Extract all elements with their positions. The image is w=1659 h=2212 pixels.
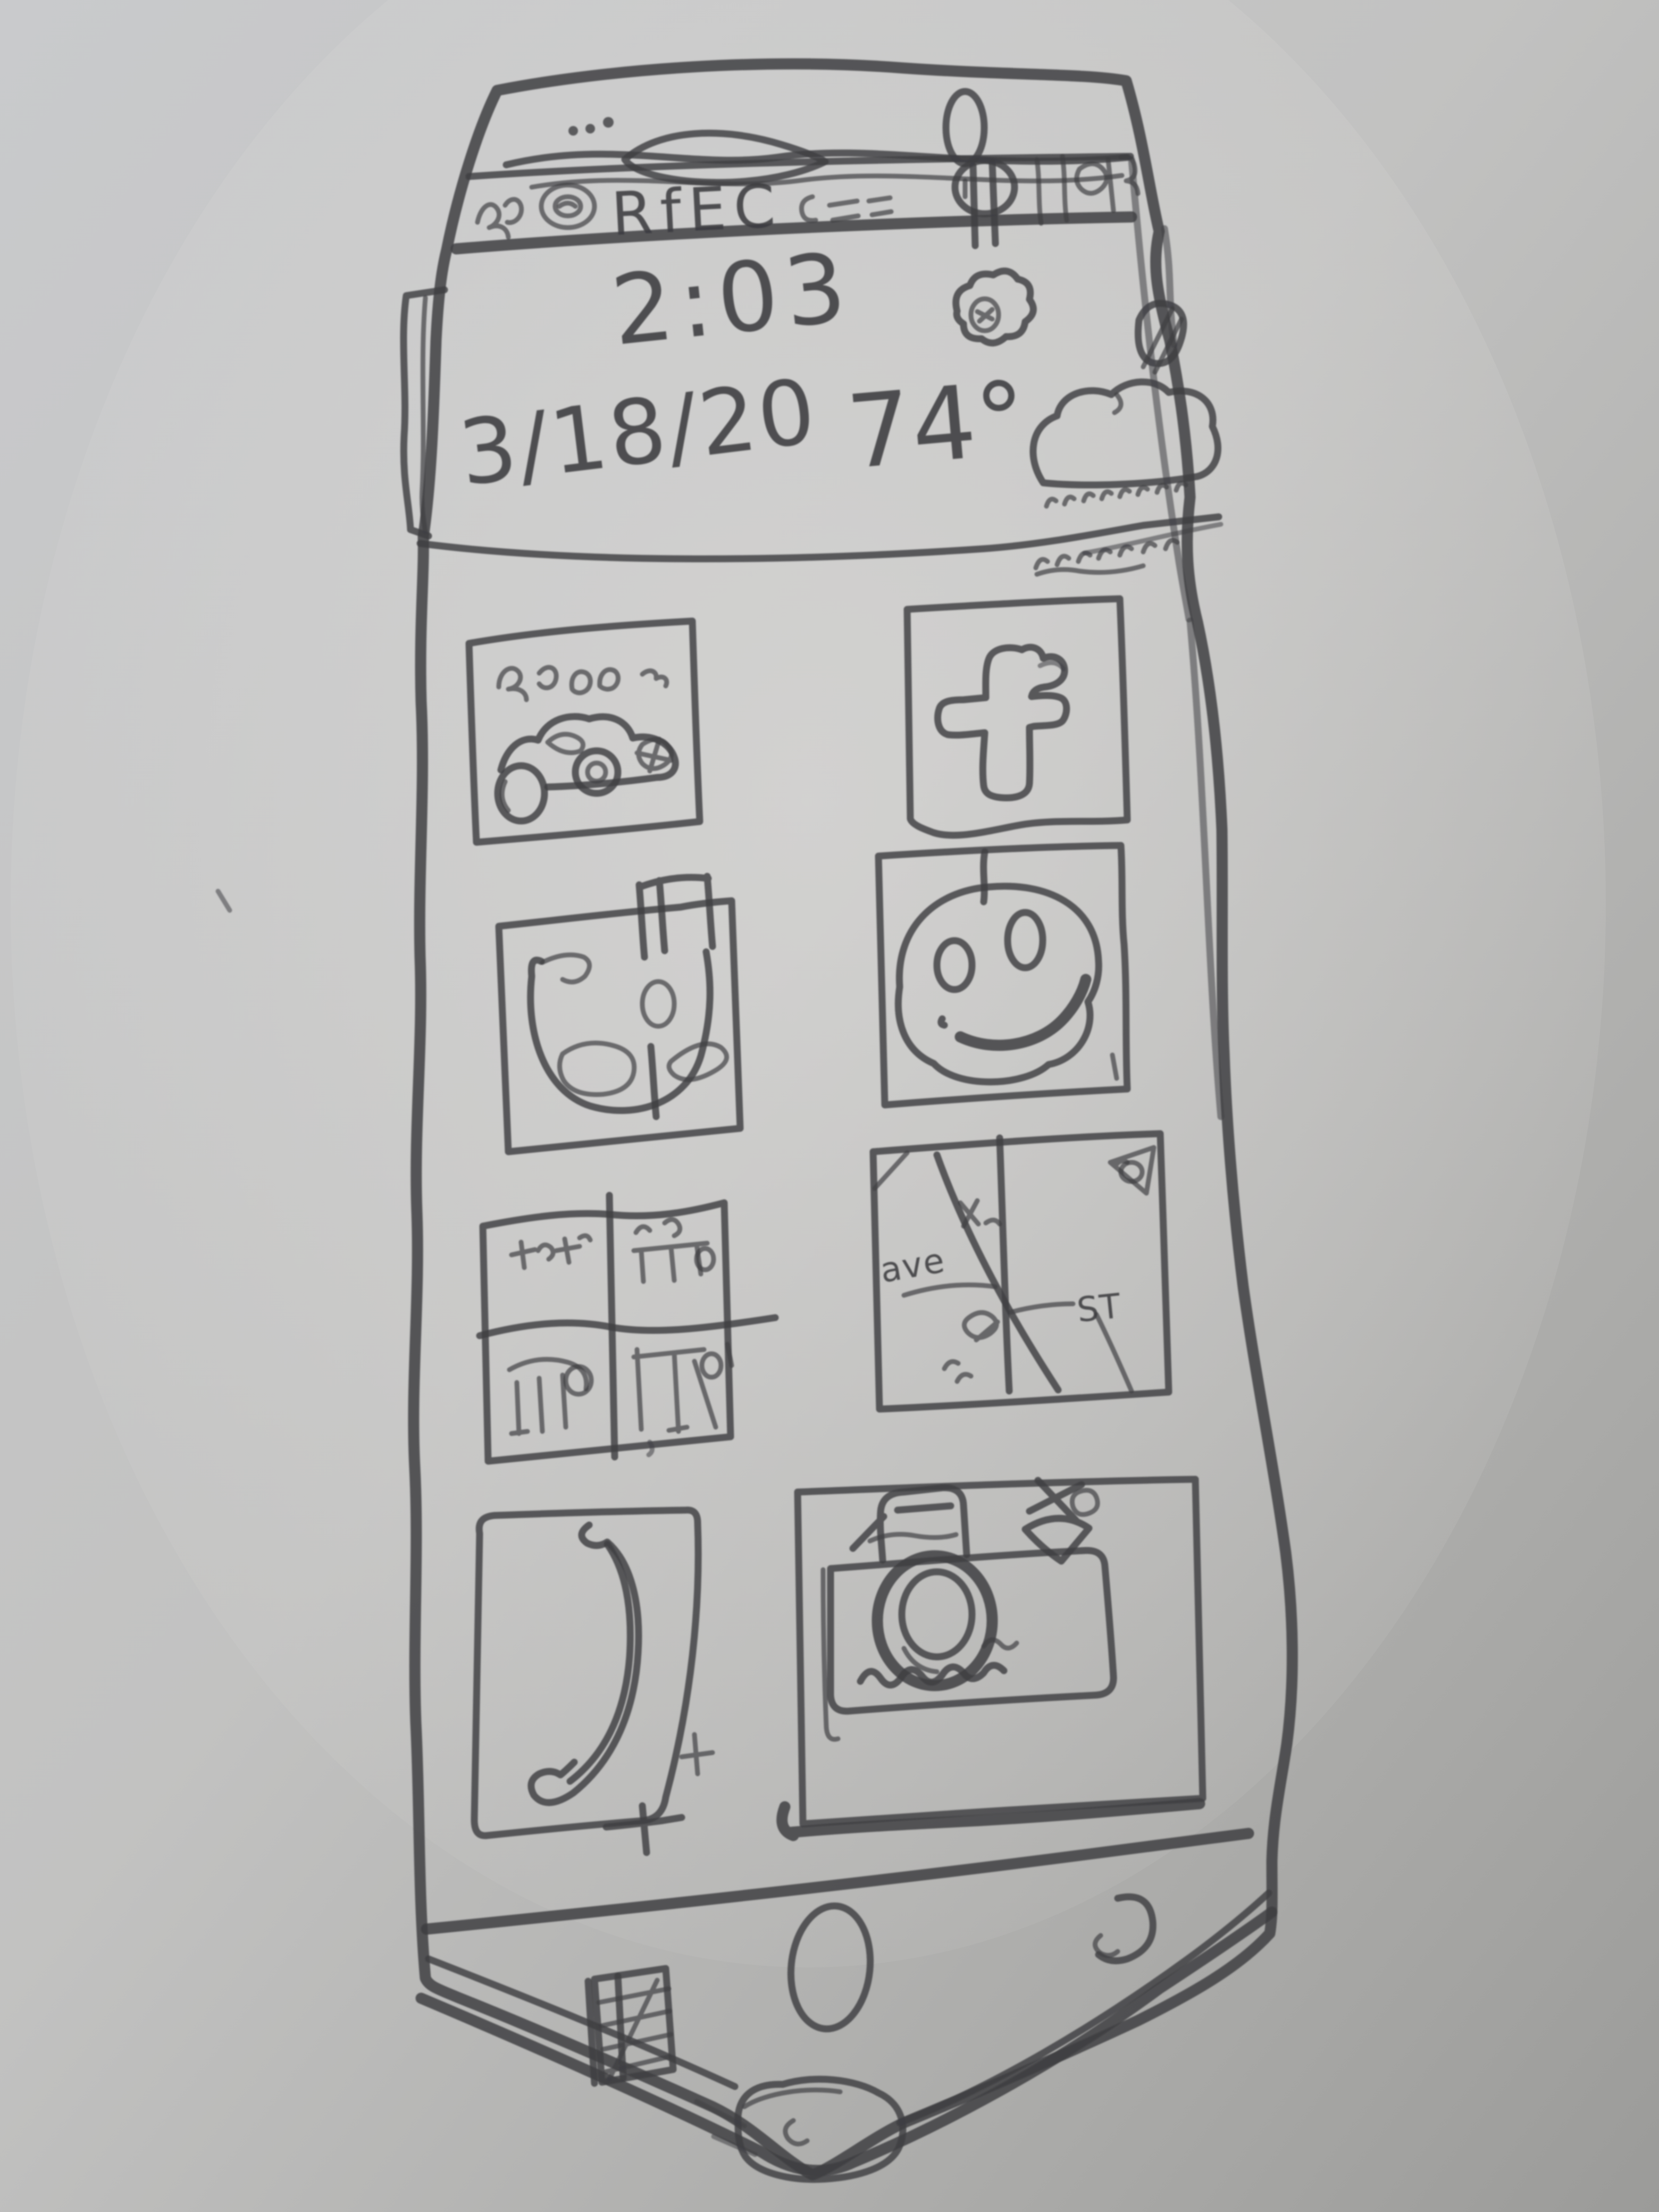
photo-of-sketch: RfEC 2:03 3/18/20 74° (0, 0, 1659, 2212)
sketch-canvas: RfEC 2:03 3/18/20 74° (0, 0, 1659, 2212)
speaker-dot (603, 117, 614, 128)
temperature: 74° (843, 359, 1032, 492)
speaker-dot (585, 124, 595, 133)
map-label-st: ST (1075, 1287, 1124, 1330)
speaker-dot (568, 126, 578, 136)
status-letters: RfEC (610, 171, 785, 249)
